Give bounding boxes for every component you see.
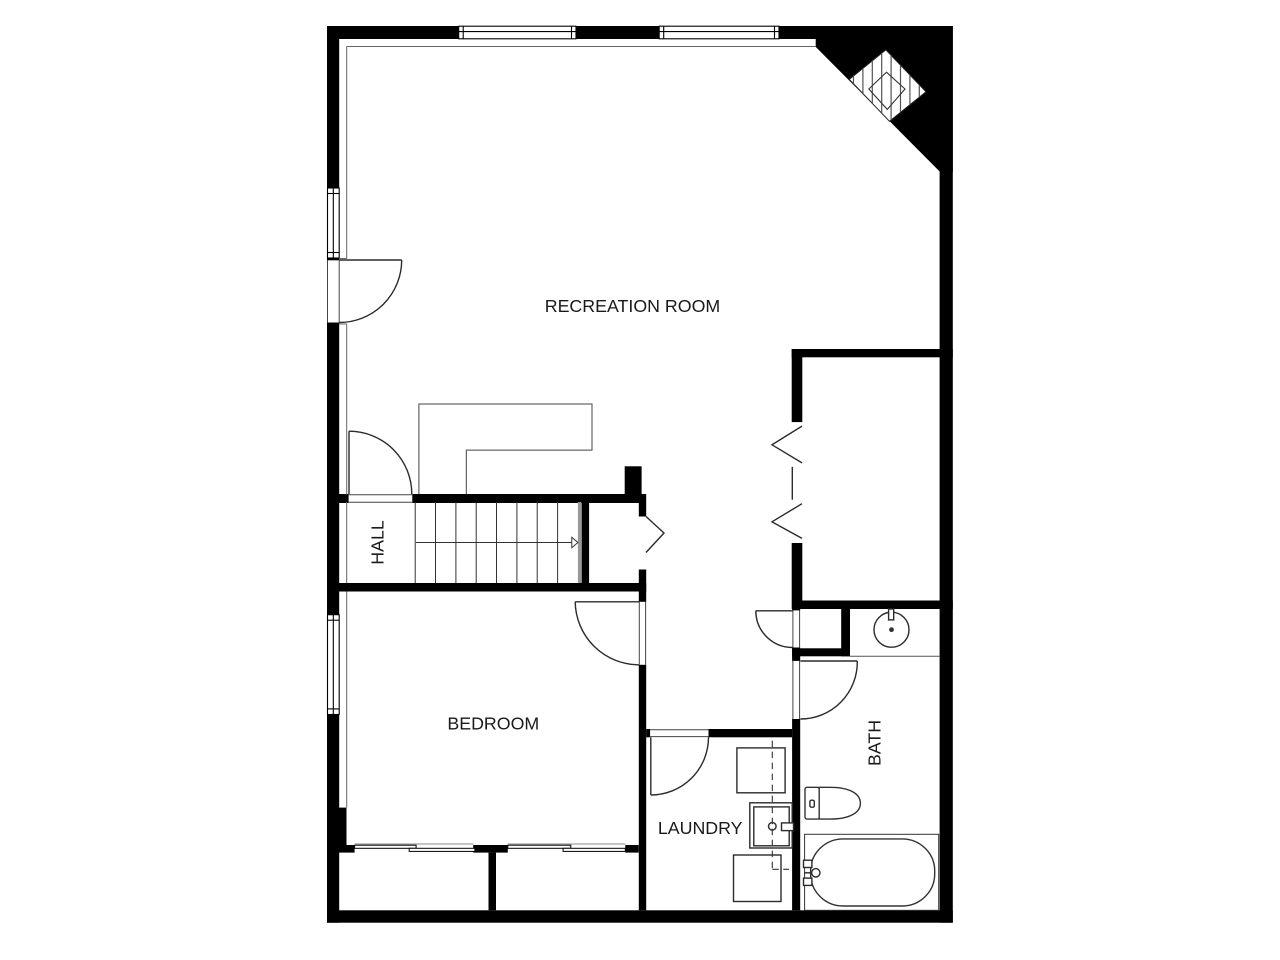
svg-text:BEDROOM: BEDROOM [447, 714, 539, 734]
svg-text:HALL: HALL [368, 520, 388, 565]
svg-text:RECREATION ROOM: RECREATION ROOM [545, 296, 721, 316]
svg-text:BATH: BATH [865, 720, 885, 766]
svg-text:LAUNDRY: LAUNDRY [658, 818, 743, 838]
